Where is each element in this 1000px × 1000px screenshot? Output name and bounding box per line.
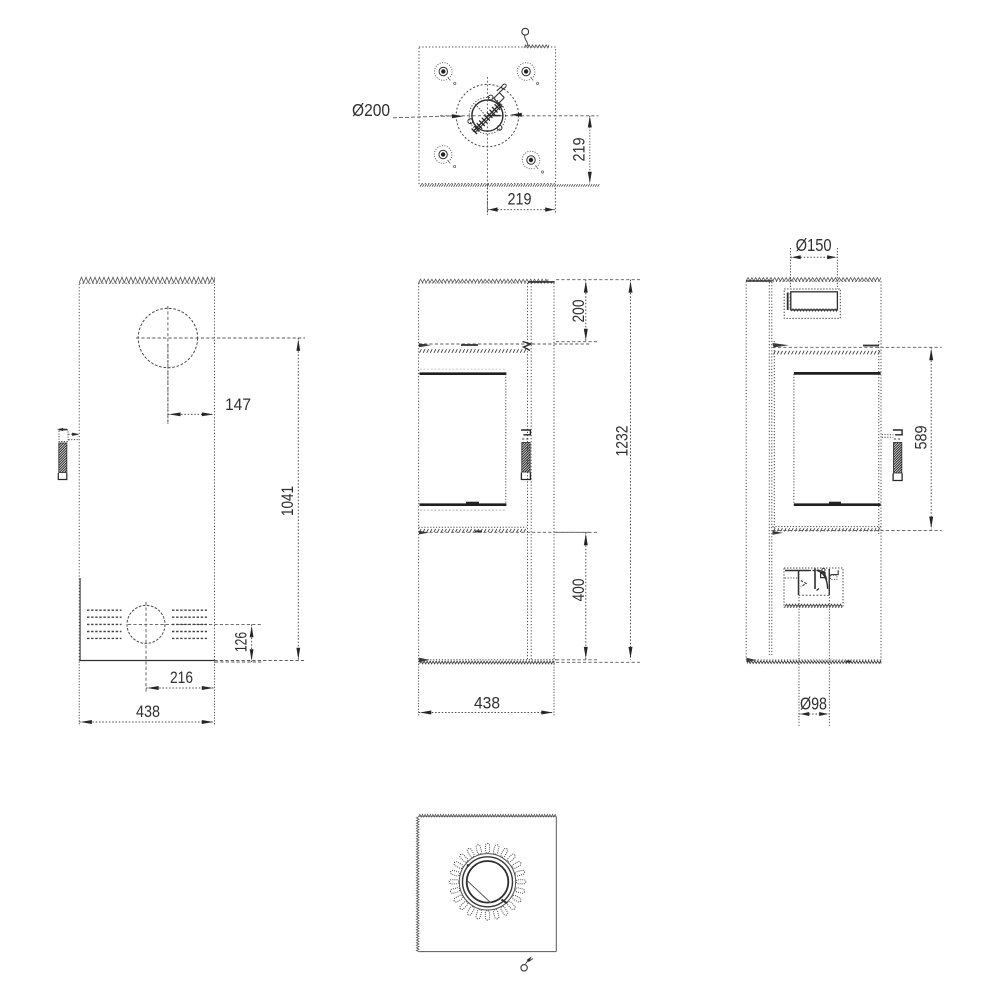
svg-text:216: 216 (170, 668, 193, 687)
svg-text:126: 126 (231, 632, 250, 652)
svg-text:Ø98: Ø98 (800, 694, 827, 714)
svg-text:Ø150: Ø150 (796, 235, 832, 255)
svg-text:200: 200 (569, 300, 588, 323)
svg-text:1232: 1232 (612, 426, 631, 457)
svg-text:589: 589 (912, 426, 931, 450)
svg-text:147: 147 (225, 395, 251, 414)
svg-text:438: 438 (474, 694, 500, 713)
svg-text:219: 219 (570, 138, 589, 162)
svg-text:438: 438 (136, 702, 160, 721)
svg-text:400: 400 (569, 579, 588, 602)
svg-text:1041: 1041 (278, 486, 297, 516)
svg-text:219: 219 (508, 190, 532, 209)
svg-text:Ø200: Ø200 (352, 100, 390, 120)
